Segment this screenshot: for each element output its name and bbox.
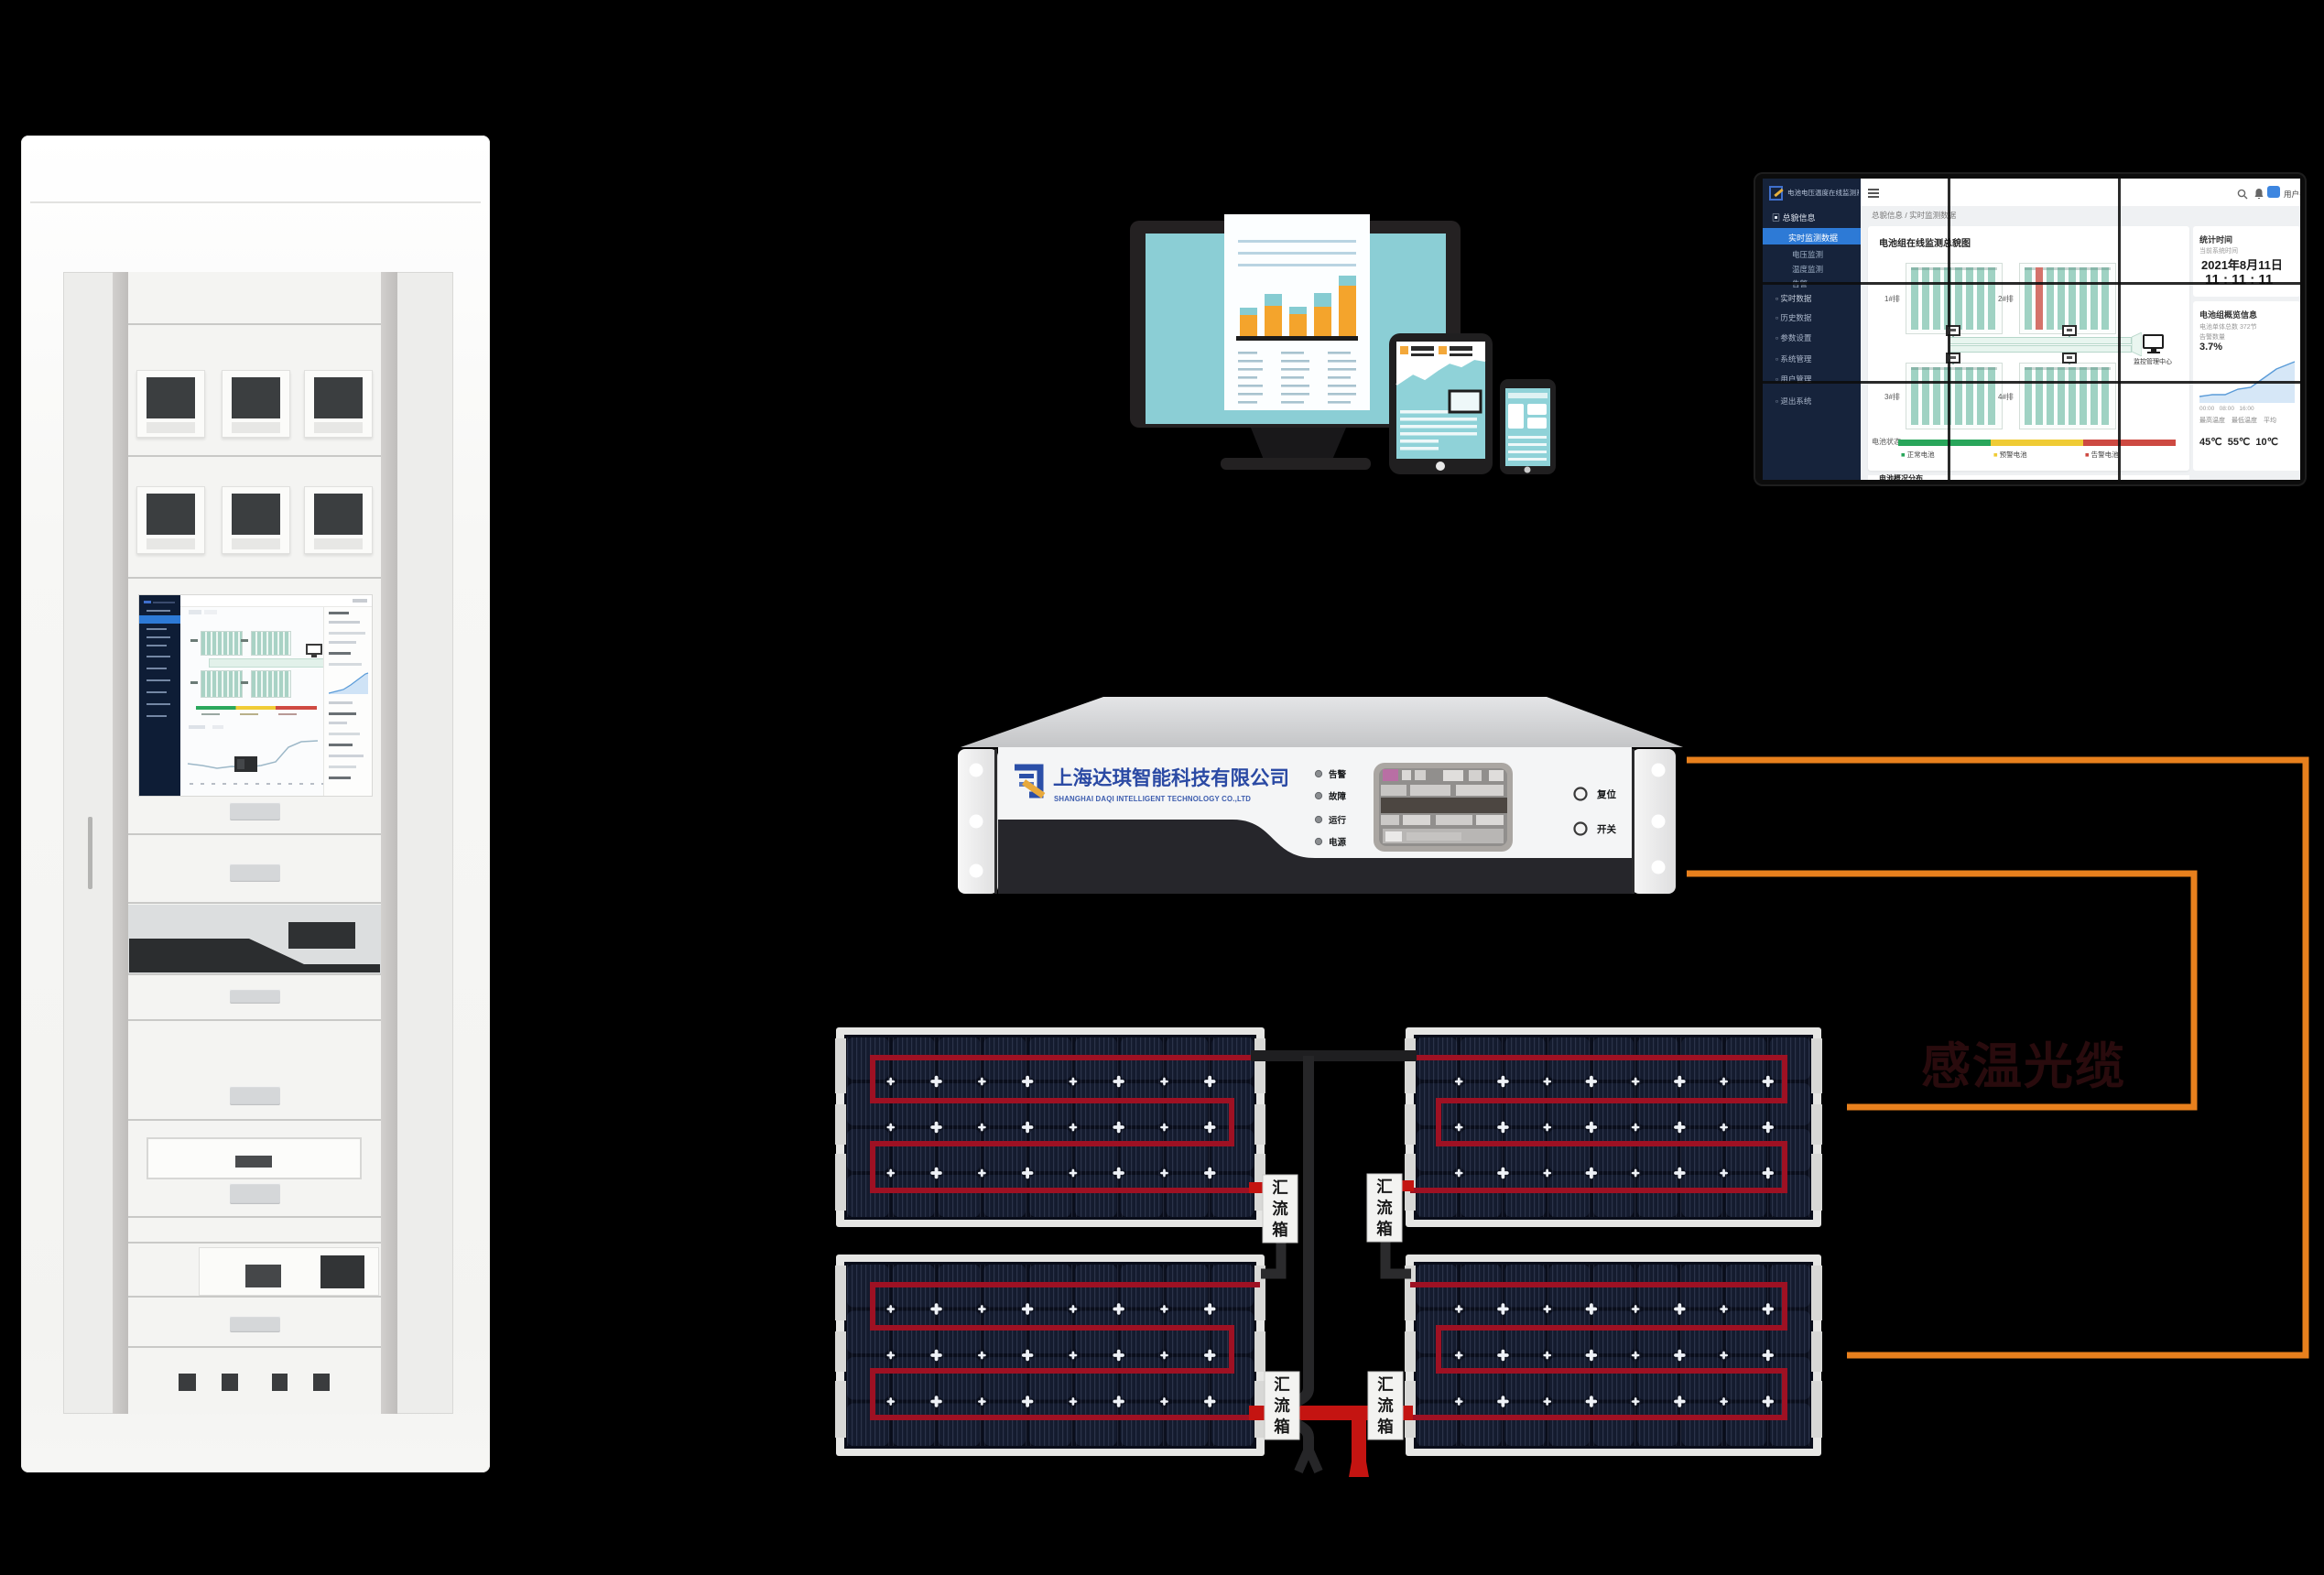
svg-text:流: 流 — [1376, 1199, 1393, 1217]
svg-text:流: 流 — [1274, 1396, 1290, 1415]
svg-text:汇: 汇 — [1376, 1178, 1393, 1196]
svg-text:故障: 故障 — [1329, 791, 1347, 802]
svg-text:箱: 箱 — [1376, 1220, 1393, 1238]
svg-text:复位: 复位 — [1596, 788, 1617, 800]
svg-text:流: 流 — [1272, 1200, 1288, 1218]
svg-text:开关: 开关 — [1597, 823, 1617, 835]
svg-text:汇: 汇 — [1272, 1179, 1288, 1197]
svg-text:运行: 运行 — [1329, 815, 1347, 826]
svg-text:上海达琪智能科技有限公司: 上海达琪智能科技有限公司 — [1053, 766, 1289, 789]
svg-text:SHANGHAI DAQI INTELLIGENT TECH: SHANGHAI DAQI INTELLIGENT TECHNOLOGY CO.… — [1054, 795, 1251, 803]
svg-text:电源: 电源 — [1329, 837, 1347, 848]
svg-text:箱: 箱 — [1272, 1221, 1288, 1239]
svg-text:汇: 汇 — [1377, 1375, 1394, 1394]
svg-text:箱: 箱 — [1274, 1417, 1290, 1436]
svg-text:汇: 汇 — [1274, 1375, 1290, 1394]
svg-text:告警: 告警 — [1329, 769, 1347, 780]
svg-text:箱: 箱 — [1377, 1417, 1394, 1436]
svg-text:流: 流 — [1377, 1396, 1394, 1415]
